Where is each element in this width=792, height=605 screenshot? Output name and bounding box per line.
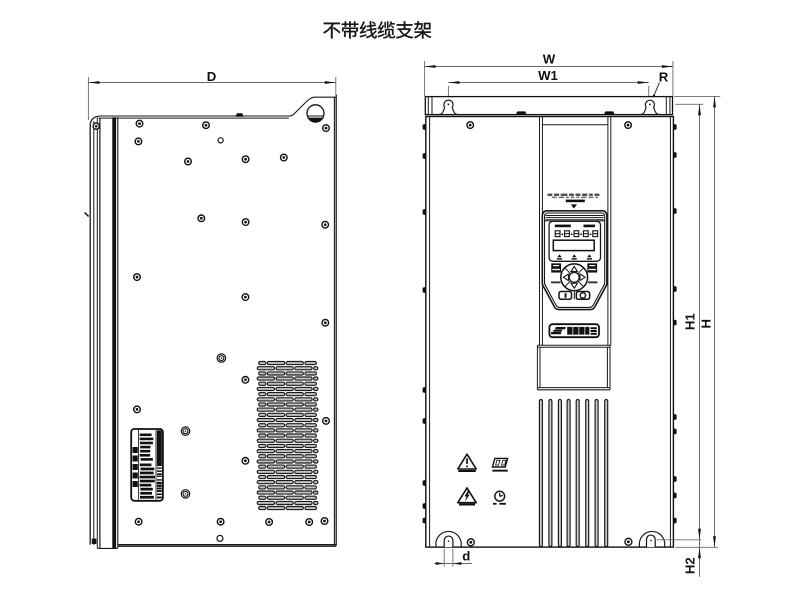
svg-text:W1: W1 <box>538 68 558 83</box>
svg-text:D: D <box>207 69 217 84</box>
svg-text:W: W <box>543 52 556 67</box>
svg-text:H2: H2 <box>683 557 698 574</box>
svg-text:H1: H1 <box>683 313 698 330</box>
svg-text:H: H <box>699 319 714 329</box>
svg-text:d: d <box>462 549 470 564</box>
svg-text:R: R <box>659 70 669 85</box>
